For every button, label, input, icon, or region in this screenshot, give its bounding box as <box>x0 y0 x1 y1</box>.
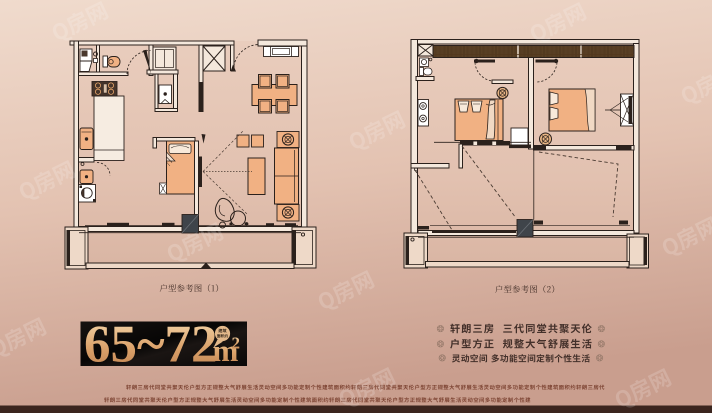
svg-text:2: 2 <box>232 334 241 353</box>
svg-text:65~72: 65~72 <box>84 316 218 374</box>
